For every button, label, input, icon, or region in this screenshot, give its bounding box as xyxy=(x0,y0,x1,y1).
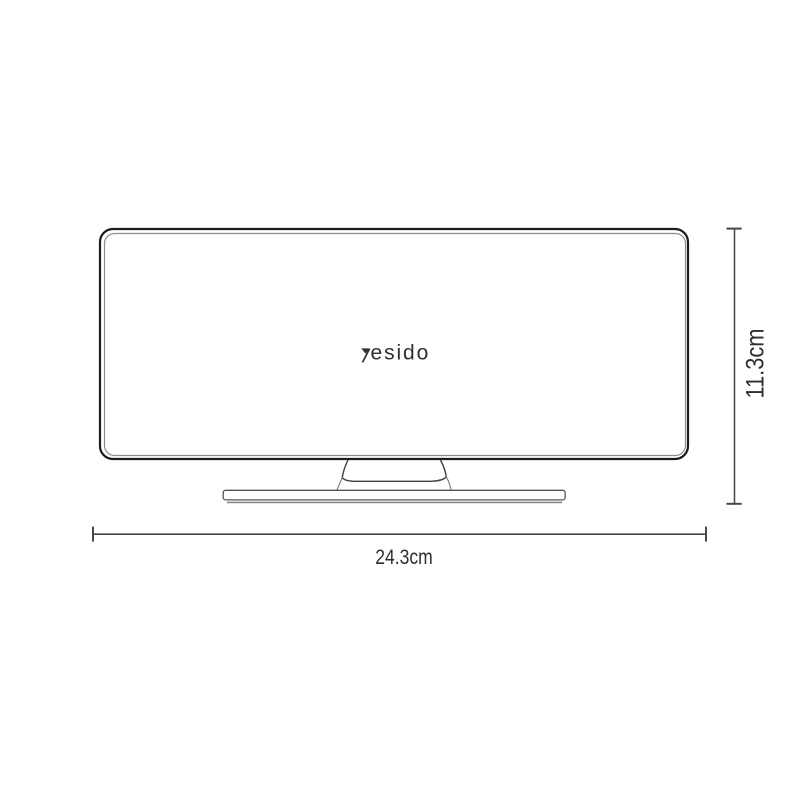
svg-text:24.3cm: 24.3cm xyxy=(375,545,433,569)
svg-text:11.3cm: 11.3cm xyxy=(742,329,770,399)
svg-text:esido: esido xyxy=(371,342,431,365)
